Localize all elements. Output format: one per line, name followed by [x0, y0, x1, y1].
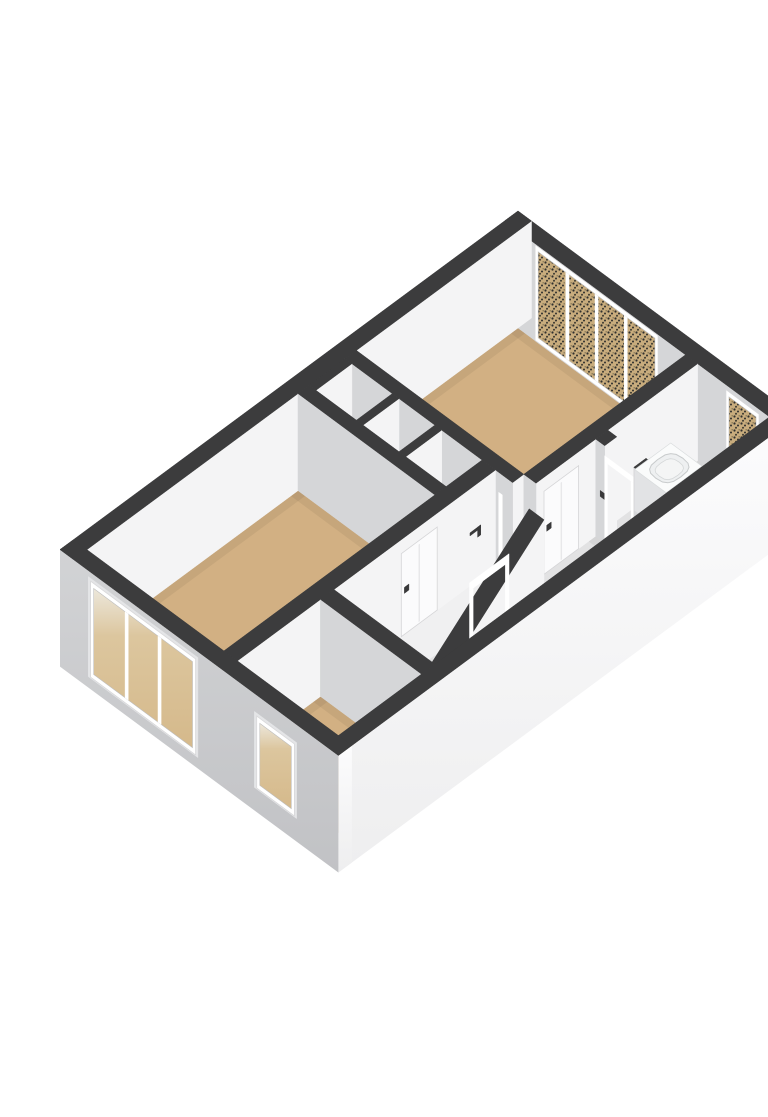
- bedroom2-window-mullion: [125, 612, 128, 700]
- handrail-bracket-2: [478, 525, 481, 537]
- wall-exterior-sw-face-se: [338, 746, 352, 873]
- floorplan-svg: [40, 16, 768, 1101]
- bedroom2-window-mullion: [158, 636, 161, 724]
- bedroom1-door-seam: [561, 482, 562, 560]
- bedroom1-window-mullion: [624, 315, 627, 403]
- floorplan-3d: [40, 16, 768, 1101]
- bedroom1-window-mullion: [595, 294, 598, 382]
- bathroom-door-jamb-left: [605, 462, 608, 545]
- bedroom2-door-seam: [419, 544, 420, 622]
- bedroom1-window-mullion: [566, 272, 569, 360]
